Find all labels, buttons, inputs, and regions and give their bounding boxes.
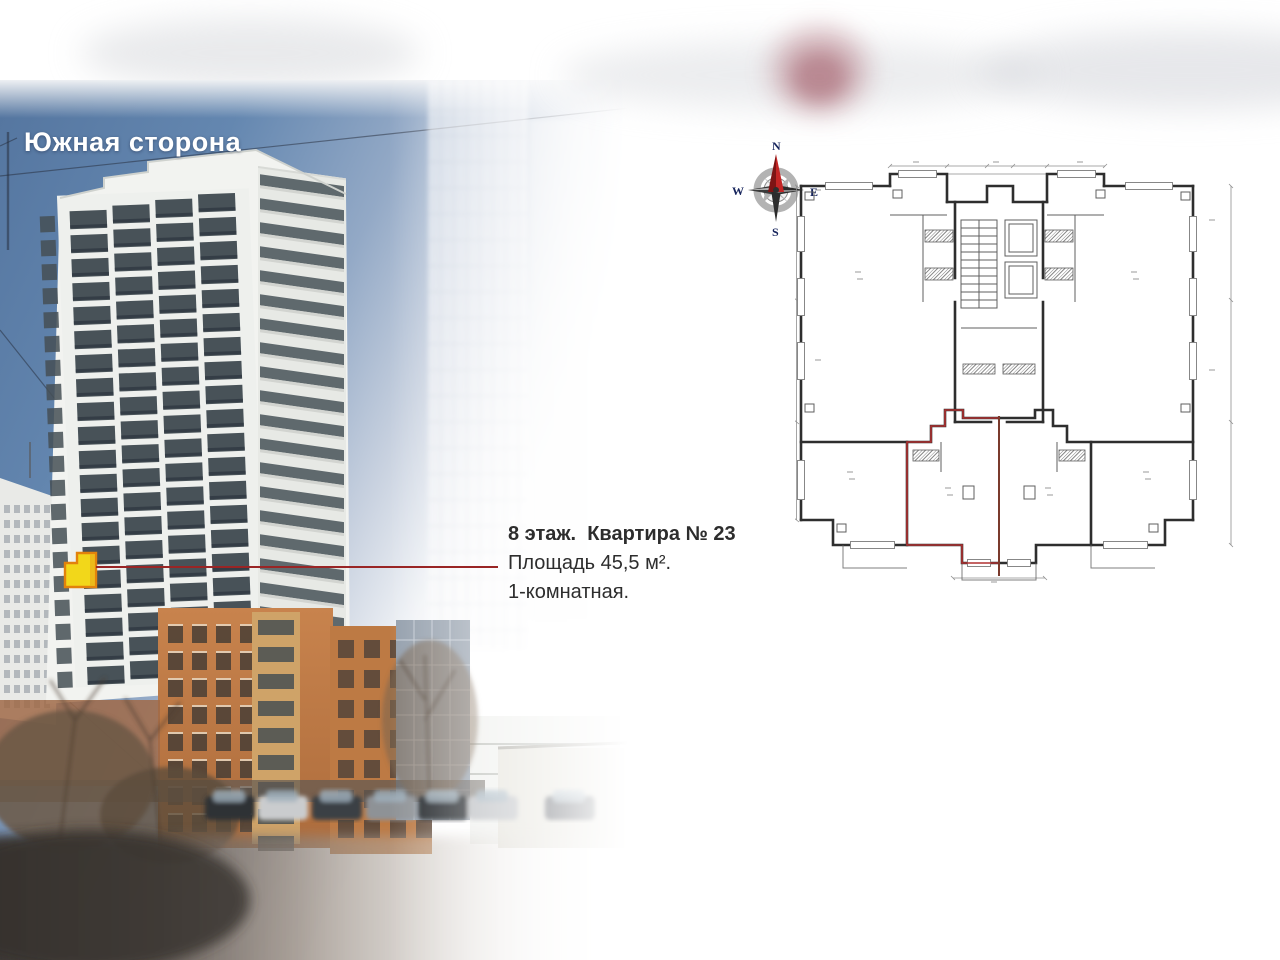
plan-partitions <box>805 190 1190 580</box>
callout-rooms: 1-комнатная. <box>508 578 736 607</box>
compass-label-north: N <box>772 139 781 153</box>
photo-caption: Южная сторона <box>24 127 241 158</box>
leader-line <box>96 566 498 568</box>
compass-label-west: W <box>732 184 744 198</box>
header-smudge-grey-left <box>80 18 420 88</box>
floor-plan <box>795 160 1235 594</box>
apartment-23-outline <box>907 410 999 563</box>
header-smudge-grey-right <box>980 30 1280 110</box>
callout-area: Площадь 45,5 м². <box>508 549 736 578</box>
apartment-marker <box>63 549 103 593</box>
presentation-slide: Южная сторона 8 этаж. Квартира № 23 Площ… <box>0 0 1280 960</box>
header-smudge-logo <box>772 28 867 113</box>
header-smudge-logo-core <box>792 52 847 102</box>
apartment-callout: 8 этаж. Квартира № 23 Площадь 45,5 м². 1… <box>508 520 736 607</box>
compass-label-south: S <box>772 225 779 238</box>
callout-floor-apartment: 8 этаж. Квартира № 23 <box>508 520 736 549</box>
